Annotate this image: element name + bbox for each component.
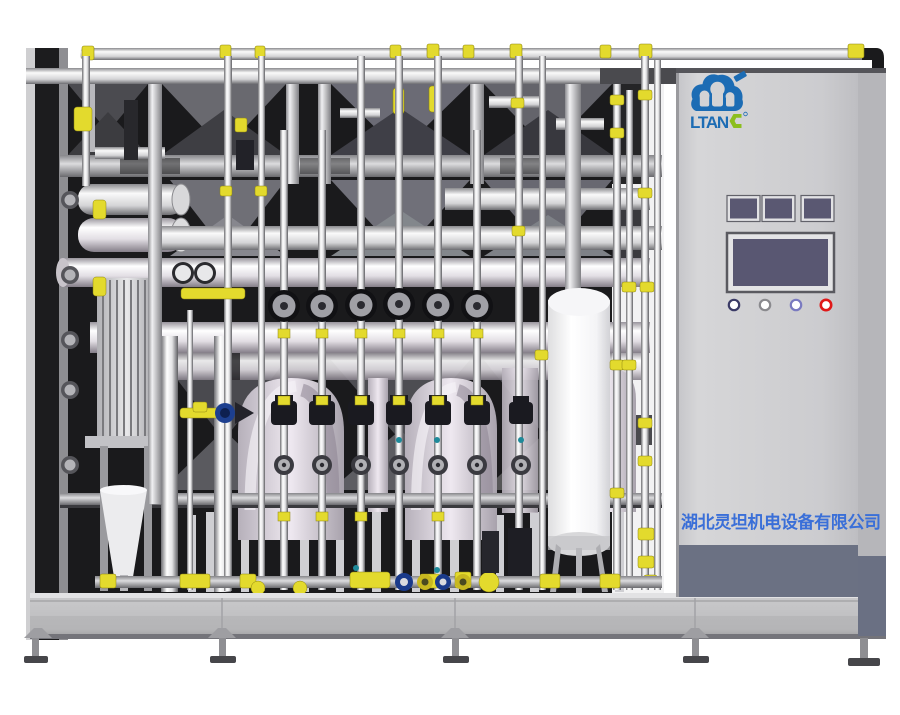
- svg-text:湖北灵坦机电设备有限公司: 湖北灵坦机电设备有限公司: [681, 512, 881, 532]
- svg-text:LTAN: LTAN: [690, 113, 729, 132]
